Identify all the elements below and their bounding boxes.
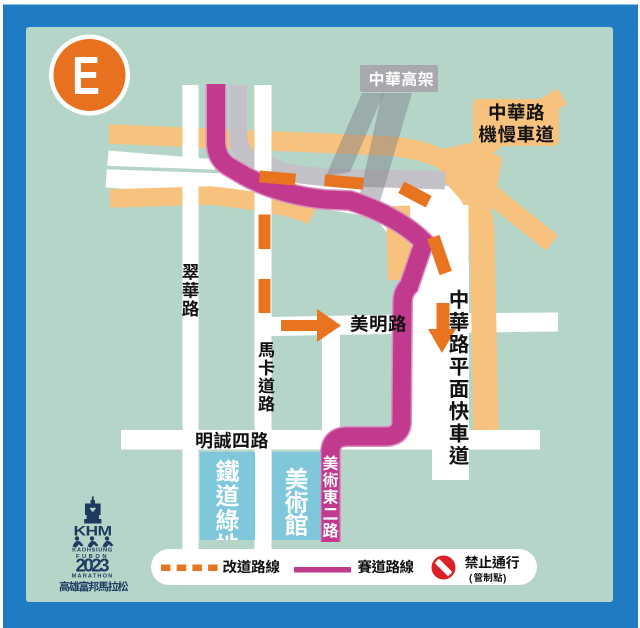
svg-text:KAOHSIUNG: KAOHSIUNG [72, 548, 113, 554]
svg-text:E: E [72, 46, 100, 107]
svg-text:MARATHON: MARATHON [72, 574, 114, 580]
svg-text:): ) [503, 574, 506, 585]
svg-text:2023: 2023 [76, 555, 110, 576]
